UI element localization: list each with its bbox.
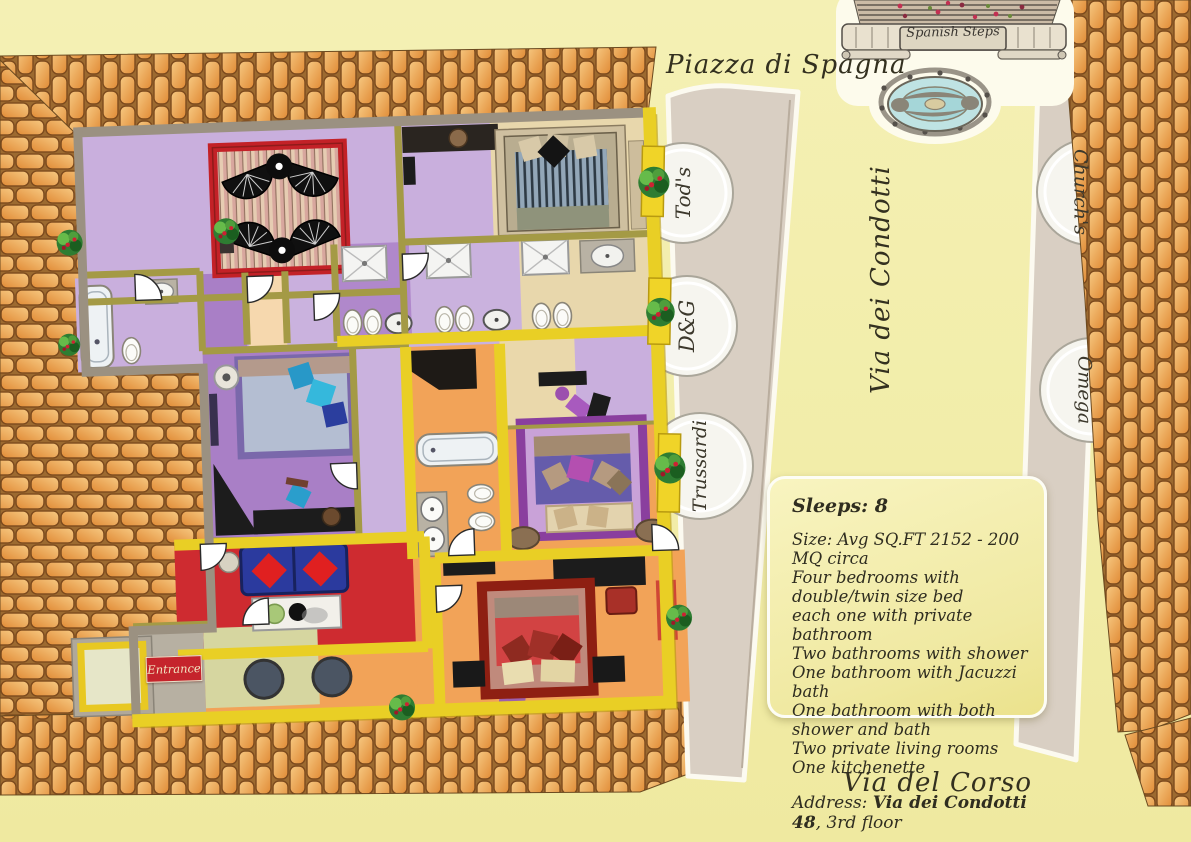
info-line: One bathroom with Jacuzzi bath — [792, 663, 1032, 701]
address-floor: , 3rd floor — [816, 813, 902, 833]
address-line: Address: Via dei Condotti 48, 3rd floor — [792, 793, 1032, 833]
info-line: Two private living rooms — [792, 739, 1032, 758]
info-line: Four bedrooms with double/twin size bed — [792, 568, 1032, 606]
terrace — [210, 143, 346, 274]
info-line: Size: Avg SQ.FT 2152 - 200 MQ circa — [792, 530, 1032, 568]
entrance-label: Entrance — [146, 655, 203, 683]
nightstand — [592, 656, 625, 683]
shower-stall-icon — [342, 246, 387, 282]
info-line: each one with private bathroom — [792, 606, 1032, 644]
info-line: One kitchenette — [792, 758, 1032, 777]
address-label: Address: — [792, 793, 873, 813]
sleeps-line: Sleeps: 8 — [792, 495, 1032, 517]
stairwell-block — [71, 636, 154, 717]
info-box: Sleeps: 8 Size: Avg SQ.FT 2152 - 200 MQ … — [767, 476, 1047, 718]
shop-label-dg: D&G — [662, 276, 712, 376]
shower-stall-icon — [426, 243, 471, 279]
shop-label-tods: Tod's — [658, 143, 708, 243]
piazza-di-spagna-label: Piazza di Spagna — [666, 50, 907, 80]
nightstand — [452, 661, 485, 688]
closet-floor — [200, 273, 248, 349]
via-dei-condotti-label: Via dei Condotti — [866, 214, 896, 394]
spanish-steps-label: Spanish Steps — [898, 24, 1008, 41]
bathtub-icon — [417, 432, 500, 467]
shop-label-trussardi: Trussardi — [675, 411, 725, 521]
brochure-canvas: Piazza di Spagna Via dei Condotti Via de… — [0, 0, 1191, 842]
round-table-icon — [244, 660, 283, 699]
shower-stall-icon — [522, 239, 569, 275]
shop-label-omega: Omega — [1060, 338, 1110, 443]
info-line: One bathroom with both shower and bath — [792, 701, 1032, 739]
shop-label-churchs: Church's — [1056, 140, 1106, 245]
info-line: Two bathrooms with shower — [792, 644, 1032, 663]
round-table-icon — [312, 657, 351, 696]
